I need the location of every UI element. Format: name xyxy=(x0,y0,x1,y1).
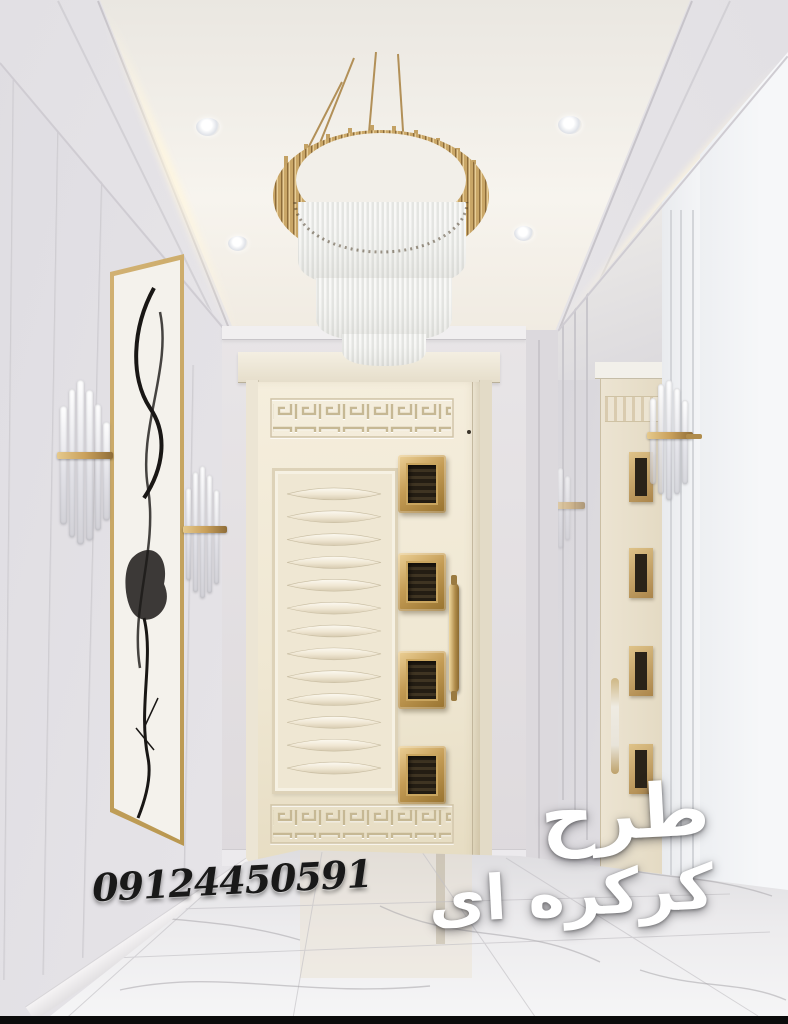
bottom-black-strip xyxy=(0,1016,788,1024)
glass-tube xyxy=(95,404,102,530)
chandelier xyxy=(254,52,518,372)
wall-molding xyxy=(82,148,104,958)
mirror-reflected-handle xyxy=(611,678,619,774)
wall-sconce-left xyxy=(60,380,110,550)
glass-rod-tiers xyxy=(298,202,466,366)
mirror-reflected-gold-window xyxy=(629,646,653,696)
glass-tube xyxy=(674,388,680,494)
door-handle xyxy=(449,583,459,693)
caption-line2: کرکره ای xyxy=(427,856,715,933)
sconce-gold-band xyxy=(183,526,227,533)
glass-tube xyxy=(682,400,688,484)
sconce-gold-band xyxy=(555,502,585,509)
abstract-ink-strokes xyxy=(114,258,180,842)
greek-key-band-top xyxy=(270,398,454,438)
glass-tube xyxy=(77,380,84,544)
glass-tube xyxy=(69,389,76,537)
glass-tube xyxy=(103,422,110,520)
shutter-panel xyxy=(272,468,398,794)
recessed-spotlight xyxy=(558,116,582,134)
recessed-spotlight xyxy=(228,236,248,251)
glass-tube xyxy=(666,380,672,500)
recessed-spotlight xyxy=(196,118,220,136)
gold-window-glass xyxy=(406,463,438,505)
glass-tube xyxy=(60,406,67,524)
gold-window xyxy=(398,455,446,513)
wall-molding xyxy=(183,365,194,885)
wall-sconce-left-rear xyxy=(186,466,224,616)
glass-tube xyxy=(86,390,93,540)
gold-window-glass xyxy=(406,561,438,603)
mirror-reflected-sconce xyxy=(558,468,582,554)
mirror-reflected-gold-window xyxy=(629,548,653,598)
glass-tube xyxy=(207,475,212,593)
shutter-slats xyxy=(284,480,384,778)
glass-tube xyxy=(650,398,656,484)
gold-window xyxy=(398,651,446,709)
glass-tube xyxy=(658,384,664,494)
peephole xyxy=(467,430,471,434)
caption-line1: طرح xyxy=(423,772,712,861)
sconce-bracket xyxy=(686,434,702,439)
artwork-canvas xyxy=(114,258,180,844)
gold-window xyxy=(398,553,446,611)
wall-molding xyxy=(42,115,59,975)
sconce-gold-band xyxy=(57,452,113,459)
hallway-photo: 09124450591 طرح کرکره ای xyxy=(0,0,788,1024)
watermark-caption: طرح کرکره ای xyxy=(423,772,716,933)
glass-tube xyxy=(186,488,191,580)
wall-molding xyxy=(3,80,14,980)
framed-artwork xyxy=(110,254,184,848)
gold-window-glass xyxy=(406,659,438,701)
wall-sconce-right xyxy=(650,380,690,515)
glass-tube xyxy=(214,490,219,584)
mirror-reflected-molding xyxy=(586,280,588,840)
